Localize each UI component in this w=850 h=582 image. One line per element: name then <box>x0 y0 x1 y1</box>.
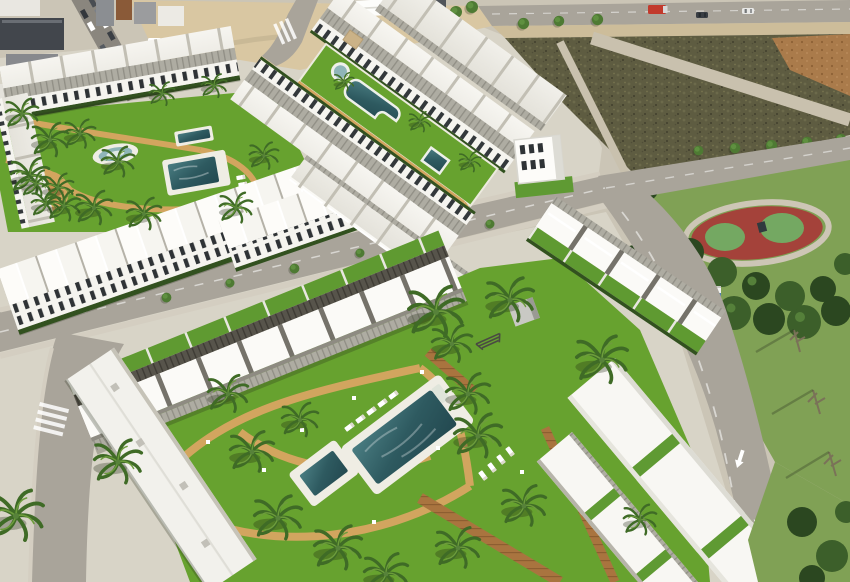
town-building-brown-roof <box>116 0 132 20</box>
town-building <box>96 0 114 26</box>
town-building <box>134 2 156 24</box>
playground-ring <box>705 223 745 251</box>
car <box>696 12 708 18</box>
car <box>742 8 754 14</box>
town-building <box>0 0 40 16</box>
playground-ring <box>760 213 804 243</box>
town-building <box>158 6 184 26</box>
scene-canvas <box>0 0 850 582</box>
aerial-render-image <box>0 0 850 582</box>
